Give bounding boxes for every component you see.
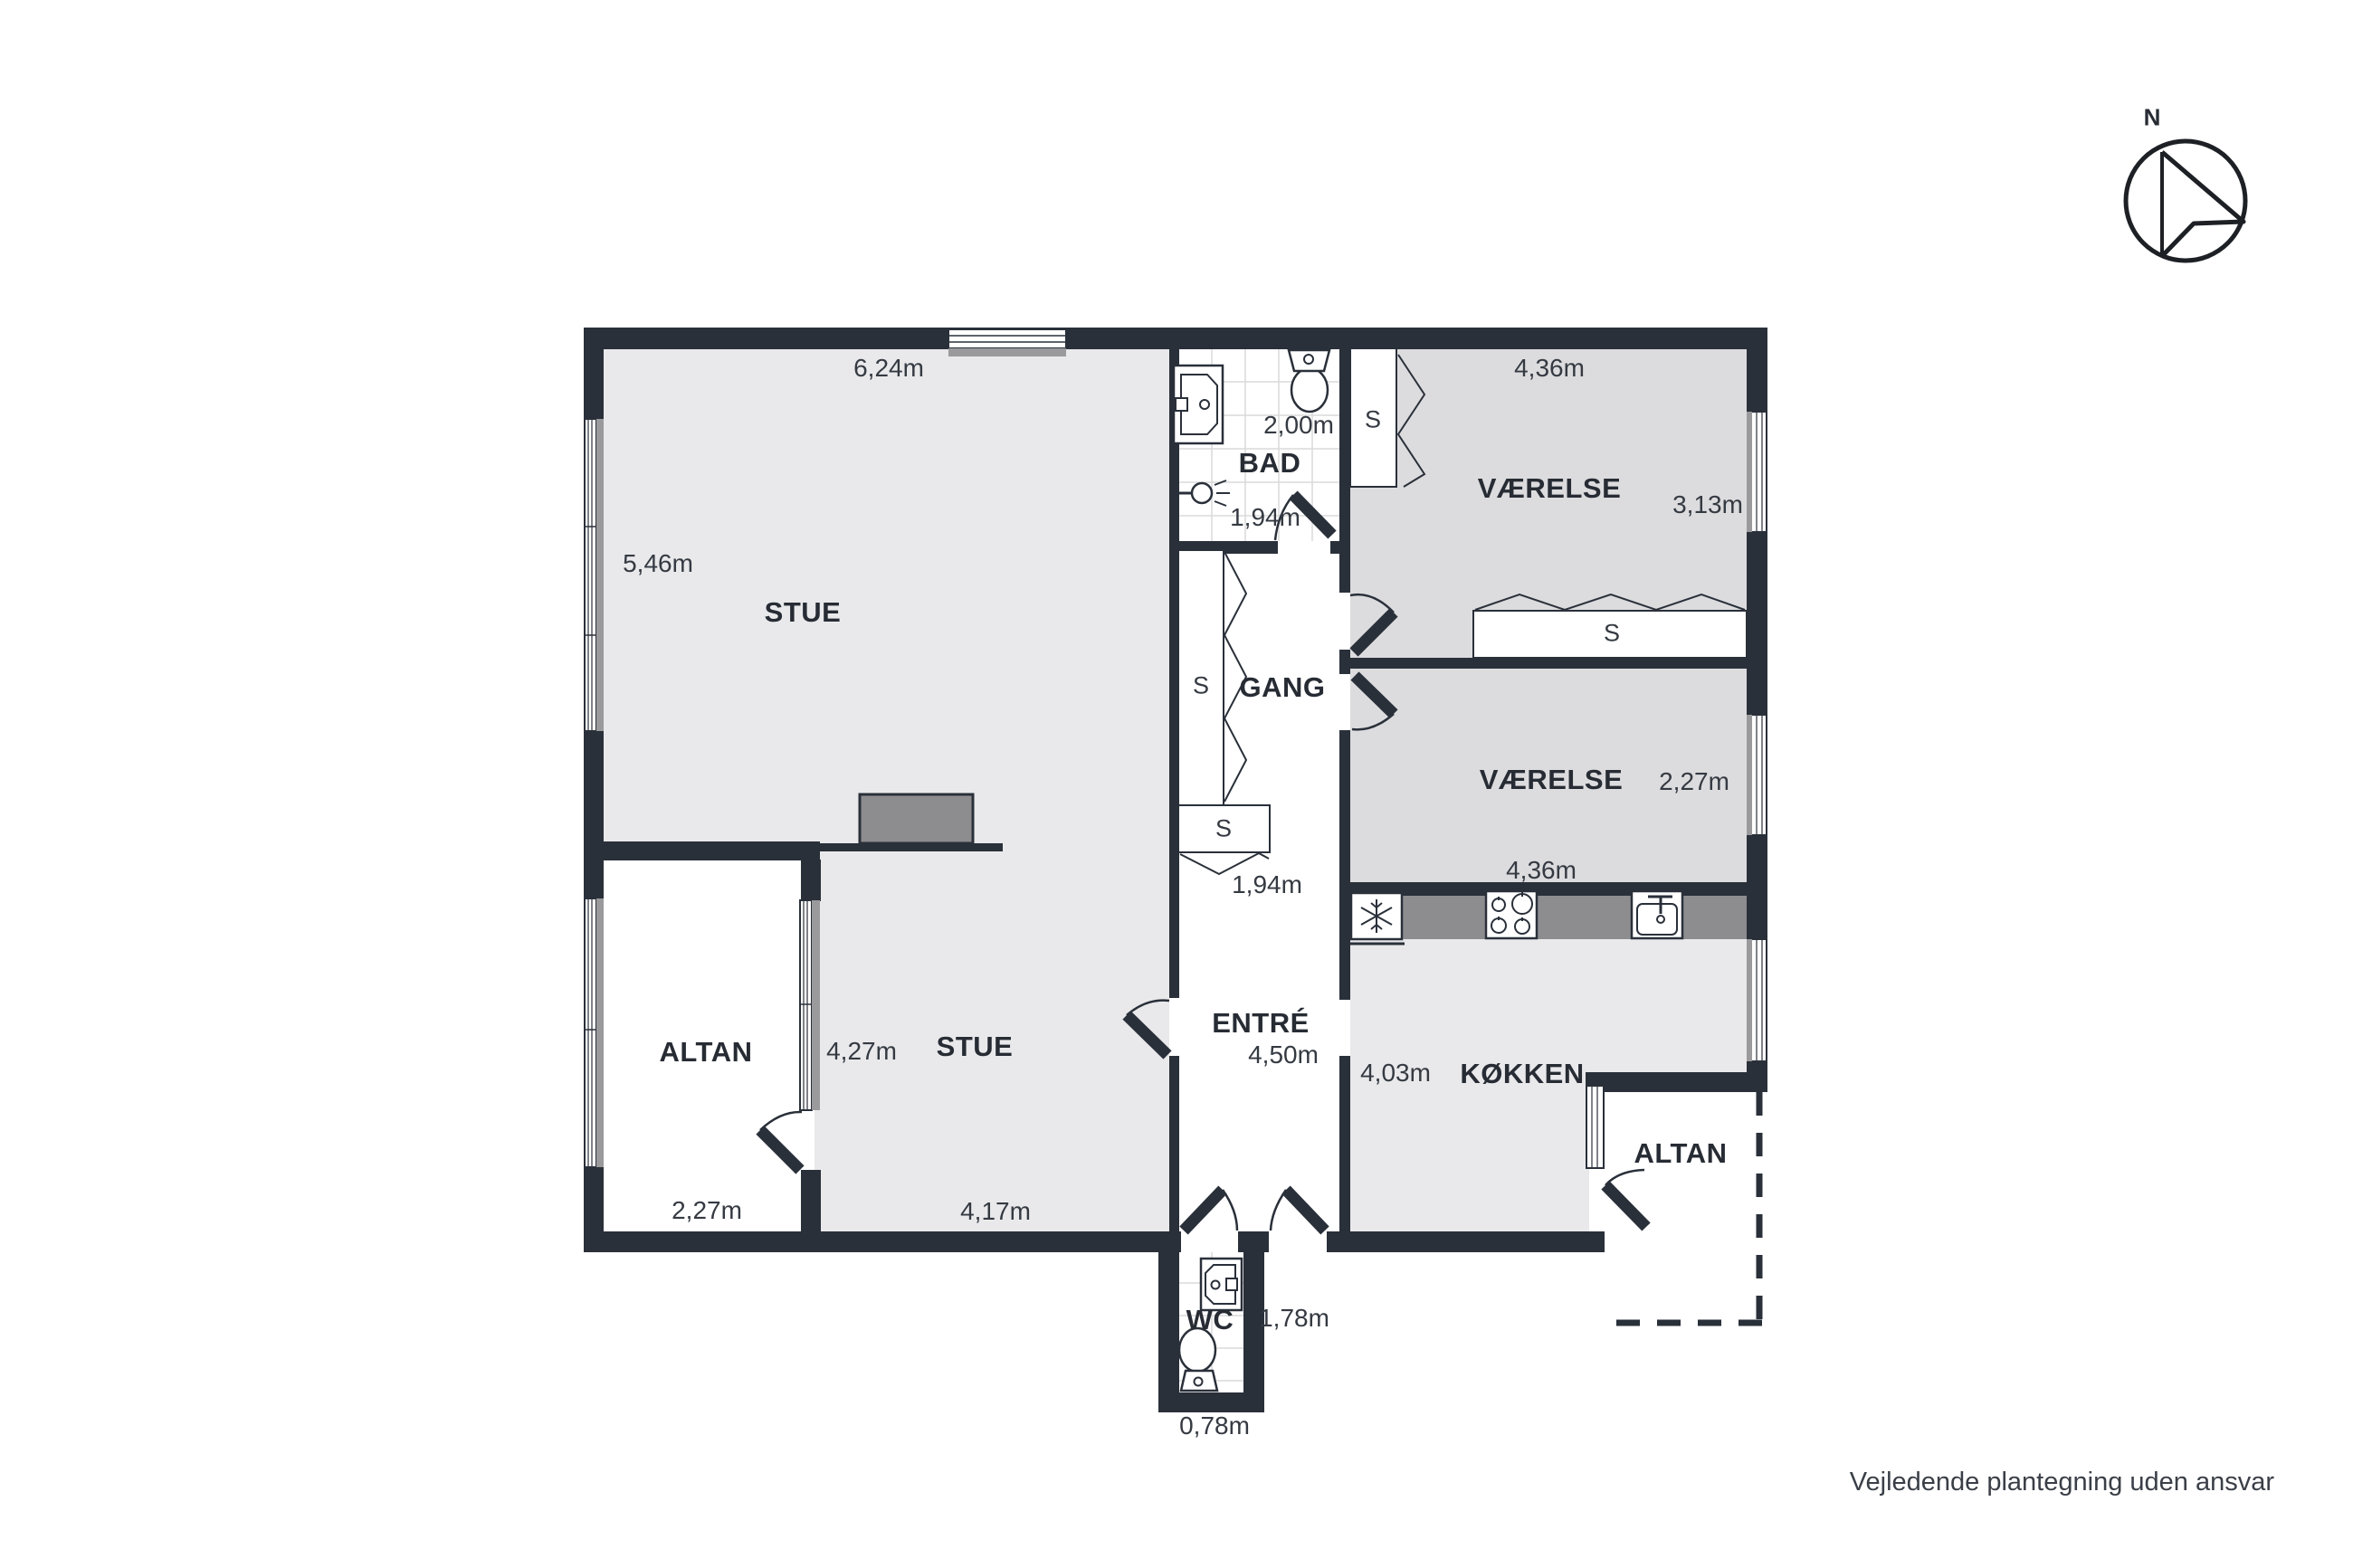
- disclaimer-text: Vejledende plantegning uden ansvar: [1850, 1468, 2274, 1497]
- kitchen-fixtures: [1348, 891, 1747, 944]
- dim-bad-width: 2,00m: [1263, 411, 1334, 440]
- compass-north-label: N: [2144, 104, 2161, 132]
- window-vaerelse2: [1747, 715, 1767, 835]
- dim-koekken-height: 4,03m: [1360, 1059, 1431, 1088]
- door-wc: [1184, 1190, 1237, 1231]
- shower-icon: [1179, 480, 1230, 506]
- closet-label-gang-tall: S: [1193, 672, 1209, 700]
- kitchen-sink-icon: [1632, 891, 1682, 938]
- dim-vaerelse2-width: 4,36m: [1506, 856, 1577, 885]
- dim-bad-depth: 1,94m: [1230, 503, 1300, 532]
- dim-wc-width: 0,78m: [1179, 1411, 1250, 1440]
- sink-icon: [1174, 366, 1223, 443]
- room-label-koekken: KØKKEN: [1460, 1058, 1584, 1090]
- window-altan-left: [585, 898, 604, 1167]
- dim-entre-length: 4,50m: [1248, 1041, 1319, 1069]
- floor-plan-drawing: [0, 0, 2353, 1568]
- room-label-gang: GANG: [1240, 671, 1326, 704]
- window-vaerelse1: [1747, 412, 1767, 532]
- closet-label-v1-bottom: S: [1604, 620, 1620, 648]
- door-altan-vest: [760, 1112, 802, 1170]
- dim-vaerelse2-height: 2,27m: [1659, 767, 1729, 796]
- dim-wc-length: 1,78m: [1259, 1304, 1329, 1333]
- stove-icon: [1486, 891, 1537, 938]
- dim-vaerelse1-width: 4,36m: [1514, 354, 1585, 383]
- room-label-stue2: STUE: [937, 1031, 1014, 1063]
- room-label-entre: ENTRÉ: [1212, 1007, 1310, 1040]
- room-label-vaerelse2: VÆRELSE: [1480, 764, 1624, 796]
- room-label-bad: BAD: [1239, 447, 1301, 480]
- door-entrance: [1271, 1190, 1325, 1231]
- half-wall-shelf: [819, 843, 1003, 851]
- toilet-icon: [1289, 350, 1329, 412]
- window-stue-left: [585, 419, 604, 731]
- dim-stue1-left: 5,46m: [623, 549, 693, 578]
- dim-gang-closet: 1,94m: [1232, 870, 1302, 899]
- room-label-stue1: STUE: [765, 596, 842, 629]
- wc-sink-icon: [1201, 1259, 1242, 1310]
- kitchen-counter: [1350, 896, 1747, 939]
- window-koekken-altan: [1586, 1086, 1604, 1168]
- dim-altan-vest: 2,27m: [672, 1196, 742, 1225]
- closet-label-v1-left: S: [1365, 406, 1381, 434]
- dim-vaerelse1-height: 3,13m: [1672, 490, 1743, 519]
- window-koekken: [1747, 939, 1767, 1061]
- floor-plan: 6,24m 5,46m STUE 2,00m BAD 1,94m S 4,36m…: [0, 0, 2353, 1568]
- compass-icon: [2126, 141, 2245, 261]
- window-altan-stue: [800, 900, 820, 1110]
- sideboard: [860, 794, 973, 843]
- door-altan-oest: [1605, 1170, 1646, 1227]
- floor-koekken-b: [1347, 1072, 1589, 1233]
- room-label-wc: WC: [1186, 1304, 1234, 1336]
- wc-toilet-icon: [1179, 1328, 1217, 1391]
- room-label-altan-vest: ALTAN: [660, 1036, 753, 1069]
- closet-label-gang-low: S: [1215, 815, 1232, 843]
- dim-stue2-bottom: 4,17m: [960, 1197, 1031, 1226]
- dim-stue1-top: 6,24m: [853, 354, 924, 383]
- dim-stue2-left: 4,27m: [826, 1037, 897, 1066]
- room-label-altan-oest: ALTAN: [1634, 1137, 1728, 1170]
- window-top: [948, 329, 1066, 356]
- floor-stue1: [593, 335, 1176, 846]
- freezer-icon: [1348, 893, 1405, 944]
- room-label-vaerelse1: VÆRELSE: [1478, 472, 1622, 505]
